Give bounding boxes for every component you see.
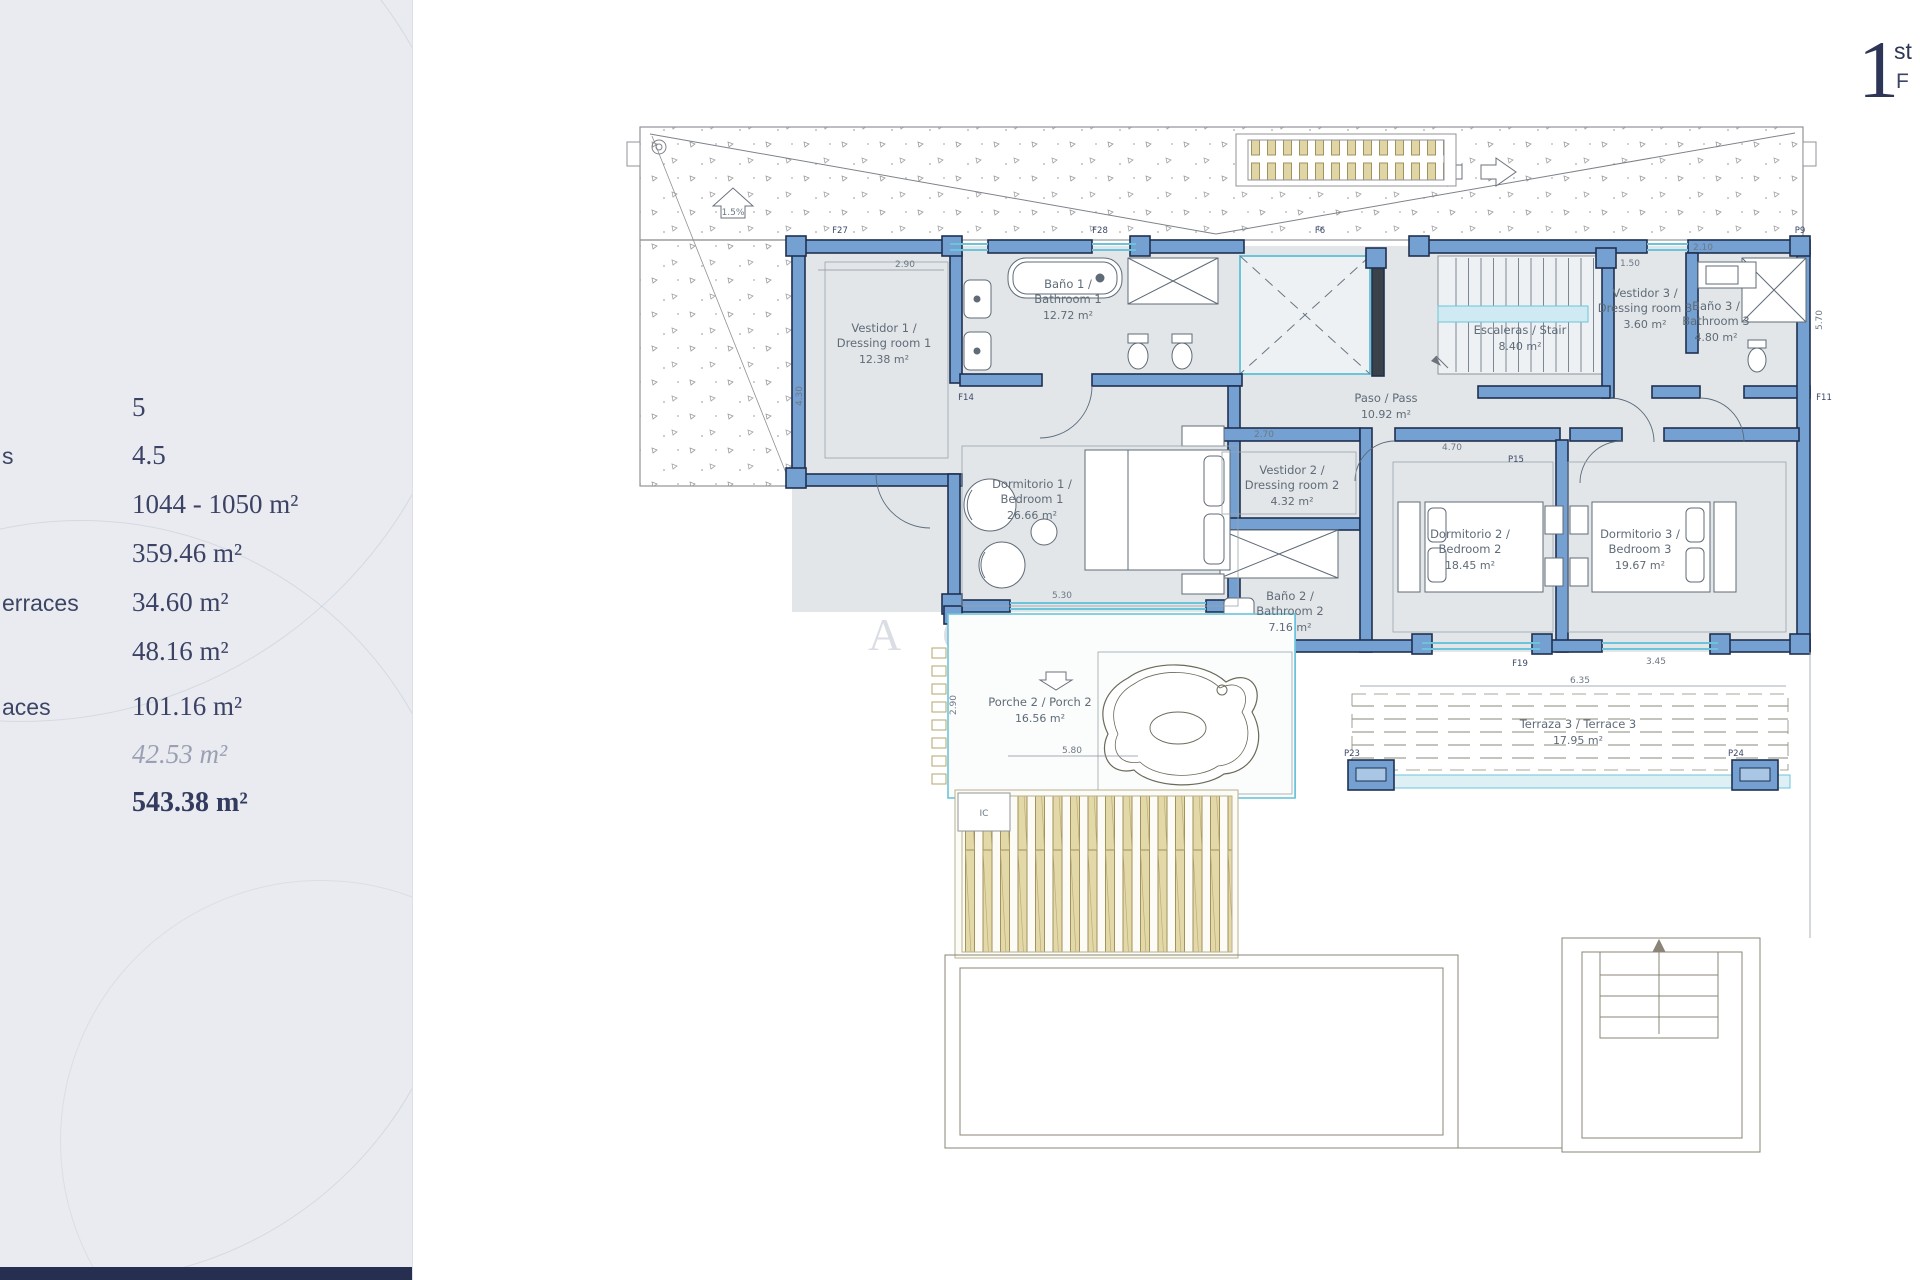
spec-row-covered-terraces: erraces 34.60 m² — [0, 587, 412, 627]
terrace-3 — [1348, 652, 1810, 938]
svg-text:5.30: 5.30 — [1052, 591, 1072, 601]
bed-1 — [1085, 426, 1230, 594]
svg-text:3.45: 3.45 — [1646, 657, 1666, 667]
svg-text:Bedroom 2: Bedroom 2 — [1439, 542, 1502, 556]
floor-title: 1 st F — [1858, 30, 1920, 120]
top-pergola — [1236, 134, 1456, 186]
room-label-b1: Baño 1 / — [1044, 277, 1092, 291]
property-spec-sidebar: 5 s 4.5 1044 - 1050 m² 359.46 m² erraces… — [0, 0, 413, 1280]
svg-text:Bathroom 1: Bathroom 1 — [1034, 292, 1101, 306]
svg-text:P15: P15 — [1508, 455, 1524, 465]
svg-text:18.45 m²: 18.45 m² — [1445, 559, 1495, 572]
room-label-v1: Vestidor 1 / — [851, 321, 916, 335]
toilet — [1128, 334, 1148, 369]
lower-level-outline — [945, 938, 1760, 1152]
svg-text:F6: F6 — [1315, 226, 1325, 236]
svg-text:4.70: 4.70 — [1442, 443, 1462, 453]
bottom-pergola: IC — [955, 790, 1238, 958]
room-label-paso: Paso / Pass — [1354, 391, 1417, 405]
spec-row-porches: 48.16 m² — [0, 636, 412, 676]
svg-text:P23: P23 — [1344, 749, 1360, 759]
svg-text:3.60 m²: 3.60 m² — [1623, 318, 1666, 331]
spec-row-solarium: 42.53 m² — [0, 739, 412, 779]
room-label-v3: Vestidor 3 / — [1612, 286, 1677, 300]
svg-text:2.70: 2.70 — [1254, 430, 1274, 440]
spec-row-plot: 1044 - 1050 m² — [0, 489, 412, 529]
spec-value: 1044 - 1050 m² — [132, 489, 298, 520]
room-label-d3: Dormitorio 3 / — [1600, 527, 1680, 541]
porch-2 — [932, 614, 1295, 798]
spec-value: 4.5 — [132, 440, 166, 471]
svg-text:Dressing room 1: Dressing room 1 — [837, 336, 932, 350]
spec-label: s — [2, 443, 14, 470]
spec-label: aces — [2, 694, 51, 721]
spec-value: 5 — [132, 392, 146, 423]
spec-row-built: 359.46 m² — [0, 538, 412, 578]
floor-number: 1 — [1858, 24, 1899, 115]
spec-label: erraces — [2, 590, 79, 617]
svg-text:F27: F27 — [832, 226, 848, 236]
room-label-d1: Dormitorio 1 / — [992, 477, 1072, 491]
spec-value: 48.16 m² — [132, 636, 229, 667]
svg-text:7.16 m²: 7.16 m² — [1268, 621, 1311, 634]
svg-text:8.40 m²: 8.40 m² — [1498, 340, 1541, 353]
svg-text:5.80: 5.80 — [1062, 746, 1082, 756]
svg-text:Dressing room 2: Dressing room 2 — [1245, 478, 1340, 492]
svg-text:Bedroom 1: Bedroom 1 — [1001, 492, 1064, 506]
room-label-b2: Baño 2 / — [1266, 589, 1314, 603]
room-label-stair: Escaleras / Stair — [1474, 323, 1567, 337]
spec-value: 359.46 m² — [132, 538, 242, 569]
toilet — [1748, 340, 1766, 372]
spec-value: 42.53 m² — [132, 739, 227, 770]
room-label-v2: Vestidor 2 / — [1259, 463, 1324, 477]
svg-text:4.30: 4.30 — [795, 386, 805, 406]
slope-label-15: 1.5% — [722, 208, 745, 218]
svg-text:2.90: 2.90 — [895, 260, 915, 270]
svg-text:Bathroom 3: Bathroom 3 — [1682, 314, 1749, 328]
floor-ordinal: st — [1894, 38, 1912, 65]
spec-row-total: 543.38 m² — [0, 787, 412, 827]
svg-text:17.95 m²: 17.95 m² — [1553, 734, 1603, 747]
room-label-terrace3: Terraza 3 / Terrace 3 — [1519, 717, 1637, 731]
toilet — [1172, 334, 1192, 369]
svg-text:P24: P24 — [1728, 749, 1744, 759]
room-label-porch2: Porche 2 / Porch 2 — [988, 695, 1092, 709]
void-skylight — [1240, 256, 1370, 374]
svg-text:1.50: 1.50 — [1620, 259, 1640, 269]
svg-text:F28: F28 — [1092, 226, 1108, 236]
svg-text:12.38 m²: 12.38 m² — [859, 353, 909, 366]
svg-text:10.92 m²: 10.92 m² — [1361, 408, 1411, 421]
svg-text:Bathroom 2: Bathroom 2 — [1256, 604, 1323, 618]
pergola-box-label: IC — [980, 809, 989, 819]
spec-value: 34.60 m² — [132, 587, 229, 618]
spec-row-terraces: aces 101.16 m² — [0, 691, 412, 731]
svg-text:2.10: 2.10 — [1693, 243, 1713, 253]
svg-text:F11: F11 — [1816, 393, 1832, 403]
svg-text:12.72 m²: 12.72 m² — [1043, 309, 1093, 322]
pool-outline — [945, 955, 1458, 1148]
svg-text:Dressing room 3: Dressing room 3 — [1598, 301, 1693, 315]
svg-text:4.80 m²: 4.80 m² — [1694, 331, 1737, 344]
svg-text:26.66 m²: 26.66 m² — [1007, 509, 1057, 522]
svg-text:19.67 m²: 19.67 m² — [1615, 559, 1665, 572]
floor-word: F — [1896, 70, 1909, 94]
svg-text:4.32 m²: 4.32 m² — [1270, 495, 1313, 508]
svg-text:F19: F19 — [1512, 659, 1528, 669]
room-label-d2: Dormitorio 2 / — [1430, 527, 1510, 541]
svg-text:F14: F14 — [958, 393, 974, 403]
spec-value: 543.38 m² — [132, 787, 248, 819]
spec-row-bedrooms: 5 — [0, 392, 412, 432]
spec-row-bathrooms: s 4.5 — [0, 440, 412, 480]
svg-text:5.70: 5.70 — [1815, 310, 1825, 330]
svg-text:P9: P9 — [1795, 226, 1806, 236]
svg-text:Bedroom 3: Bedroom 3 — [1609, 542, 1672, 556]
room-label-b3: Baño 3 / — [1692, 299, 1740, 313]
svg-text:2.90: 2.90 — [949, 695, 959, 715]
spec-value: 101.16 m² — [132, 691, 242, 722]
jacuzzi — [1103, 665, 1259, 785]
svg-text:6.35: 6.35 — [1570, 676, 1590, 686]
staircase — [1431, 256, 1602, 374]
svg-text:16.56 m²: 16.56 m² — [1015, 712, 1065, 725]
sidebar-bottom-bar — [0, 1267, 412, 1280]
exterior-stair — [1562, 938, 1760, 1152]
